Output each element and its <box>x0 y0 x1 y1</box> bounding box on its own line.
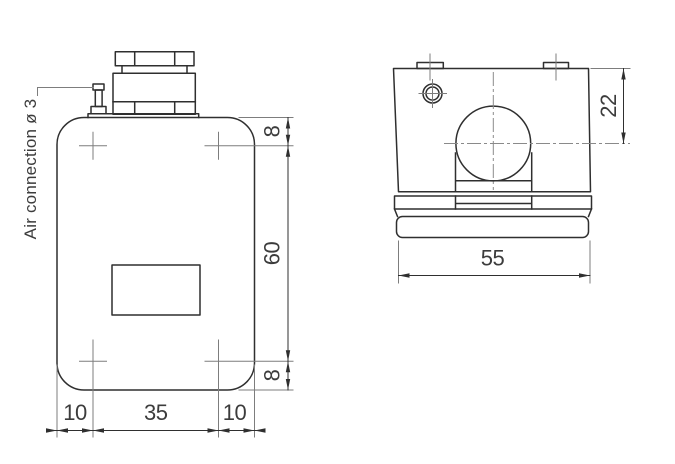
technical-drawing-page: Air connection ø 3 8 60 8 10 35 10 <box>0 0 675 464</box>
dim-left-inset: 10 <box>63 400 87 425</box>
dim-center-width: 35 <box>144 400 168 425</box>
air-nozzle <box>91 84 106 114</box>
dim-right-inset: 10 <box>223 400 247 425</box>
dim-top-offset: 8 <box>260 125 285 137</box>
electrical-connector <box>113 52 195 115</box>
front-view-dimensions: 8 60 8 10 35 10 <box>46 118 293 438</box>
dim-side-width: 55 <box>481 246 505 271</box>
leader-line <box>38 88 94 96</box>
side-view <box>394 54 631 238</box>
valve-body-outline <box>57 118 255 391</box>
dim-bottom-offset: 8 <box>260 369 285 381</box>
nameplate-window <box>112 265 200 315</box>
dimension-drawing: Air connection ø 3 8 60 8 10 35 10 <box>0 0 675 464</box>
screw-hole <box>419 80 447 108</box>
dim-bore-center-depth: 22 <box>596 94 621 118</box>
dim-body-height: 60 <box>260 242 285 266</box>
base-plate <box>397 217 589 238</box>
front-view: Air connection ø 3 <box>21 52 255 437</box>
air-connection-label: Air connection ø 3 <box>21 99 40 240</box>
side-body-outline <box>394 69 591 192</box>
hole-center-marks <box>80 132 219 437</box>
base-strip <box>395 196 592 217</box>
